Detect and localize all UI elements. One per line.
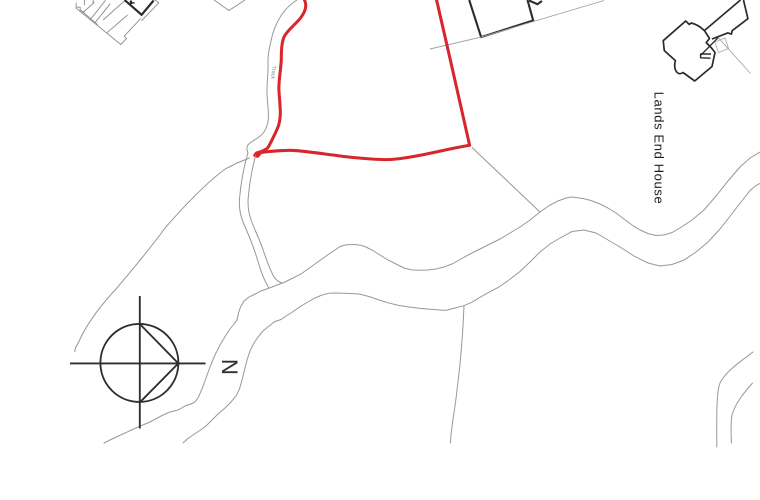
svg-text:Track: Track xyxy=(269,65,276,79)
